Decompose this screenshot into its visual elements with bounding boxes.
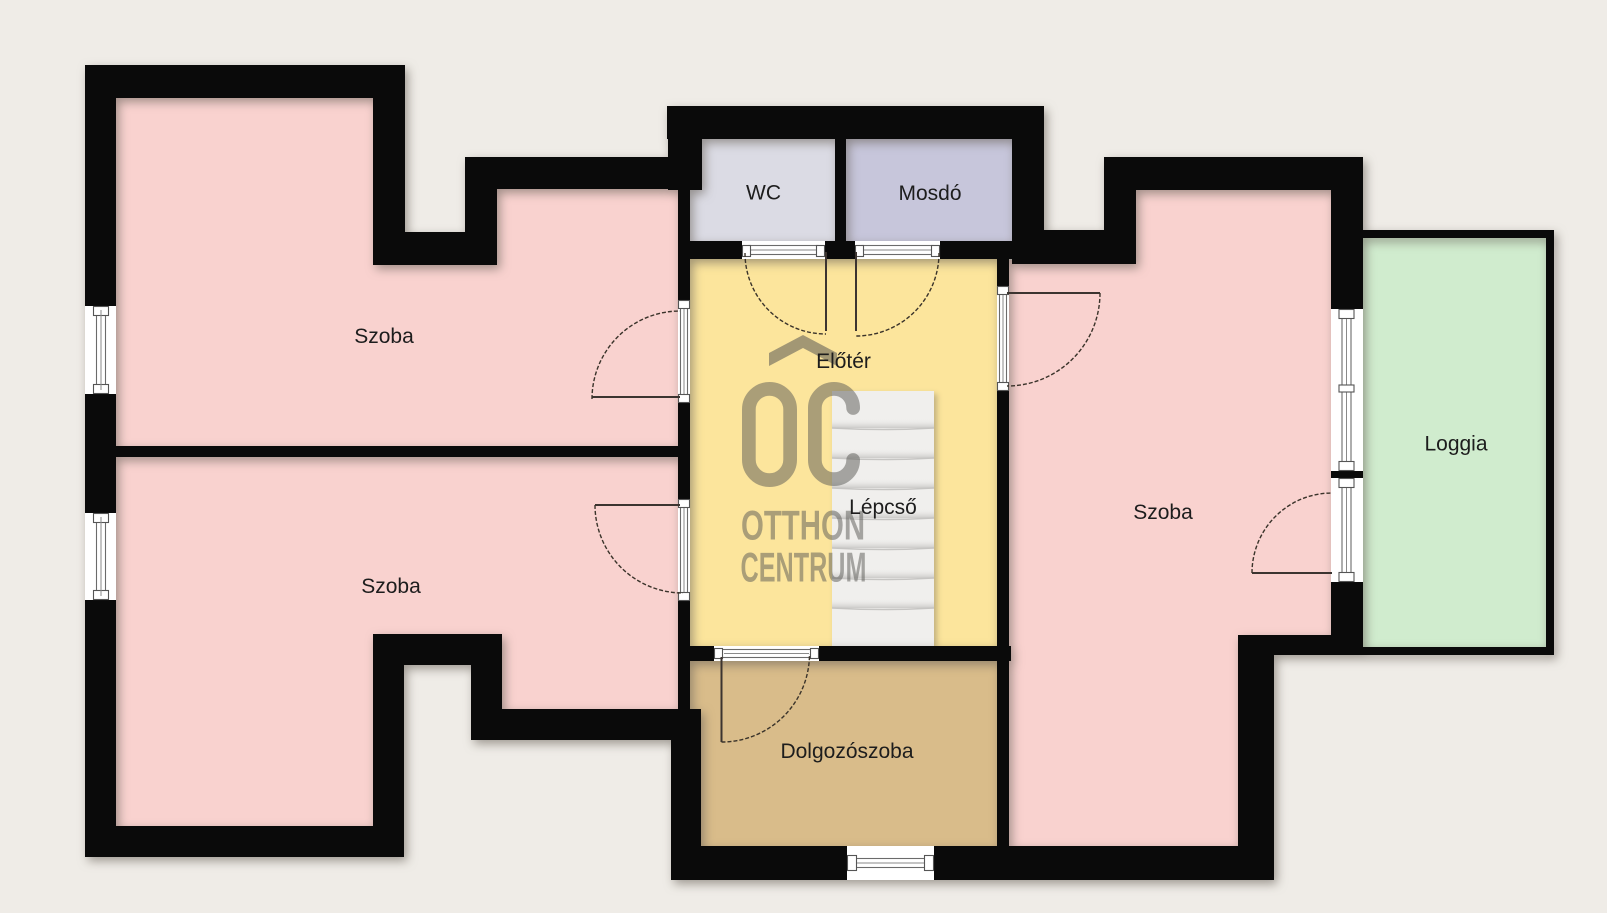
svg-text:Lépcső: Lépcső [849,496,917,519]
svg-text:Szoba: Szoba [1133,501,1193,524]
svg-text:Szoba: Szoba [361,575,421,598]
svg-text:Dolgozószoba: Dolgozószoba [780,740,913,763]
svg-text:Loggia: Loggia [1424,433,1487,456]
svg-text:Szoba: Szoba [354,325,414,348]
svg-text:Mosdó: Mosdó [898,182,961,205]
svg-text:WC: WC [746,182,781,205]
svg-text:CENTRUM: CENTRUM [741,545,867,591]
svg-text:Előtér: Előtér [816,350,871,373]
svg-text:OTTHON: OTTHON [741,501,865,549]
